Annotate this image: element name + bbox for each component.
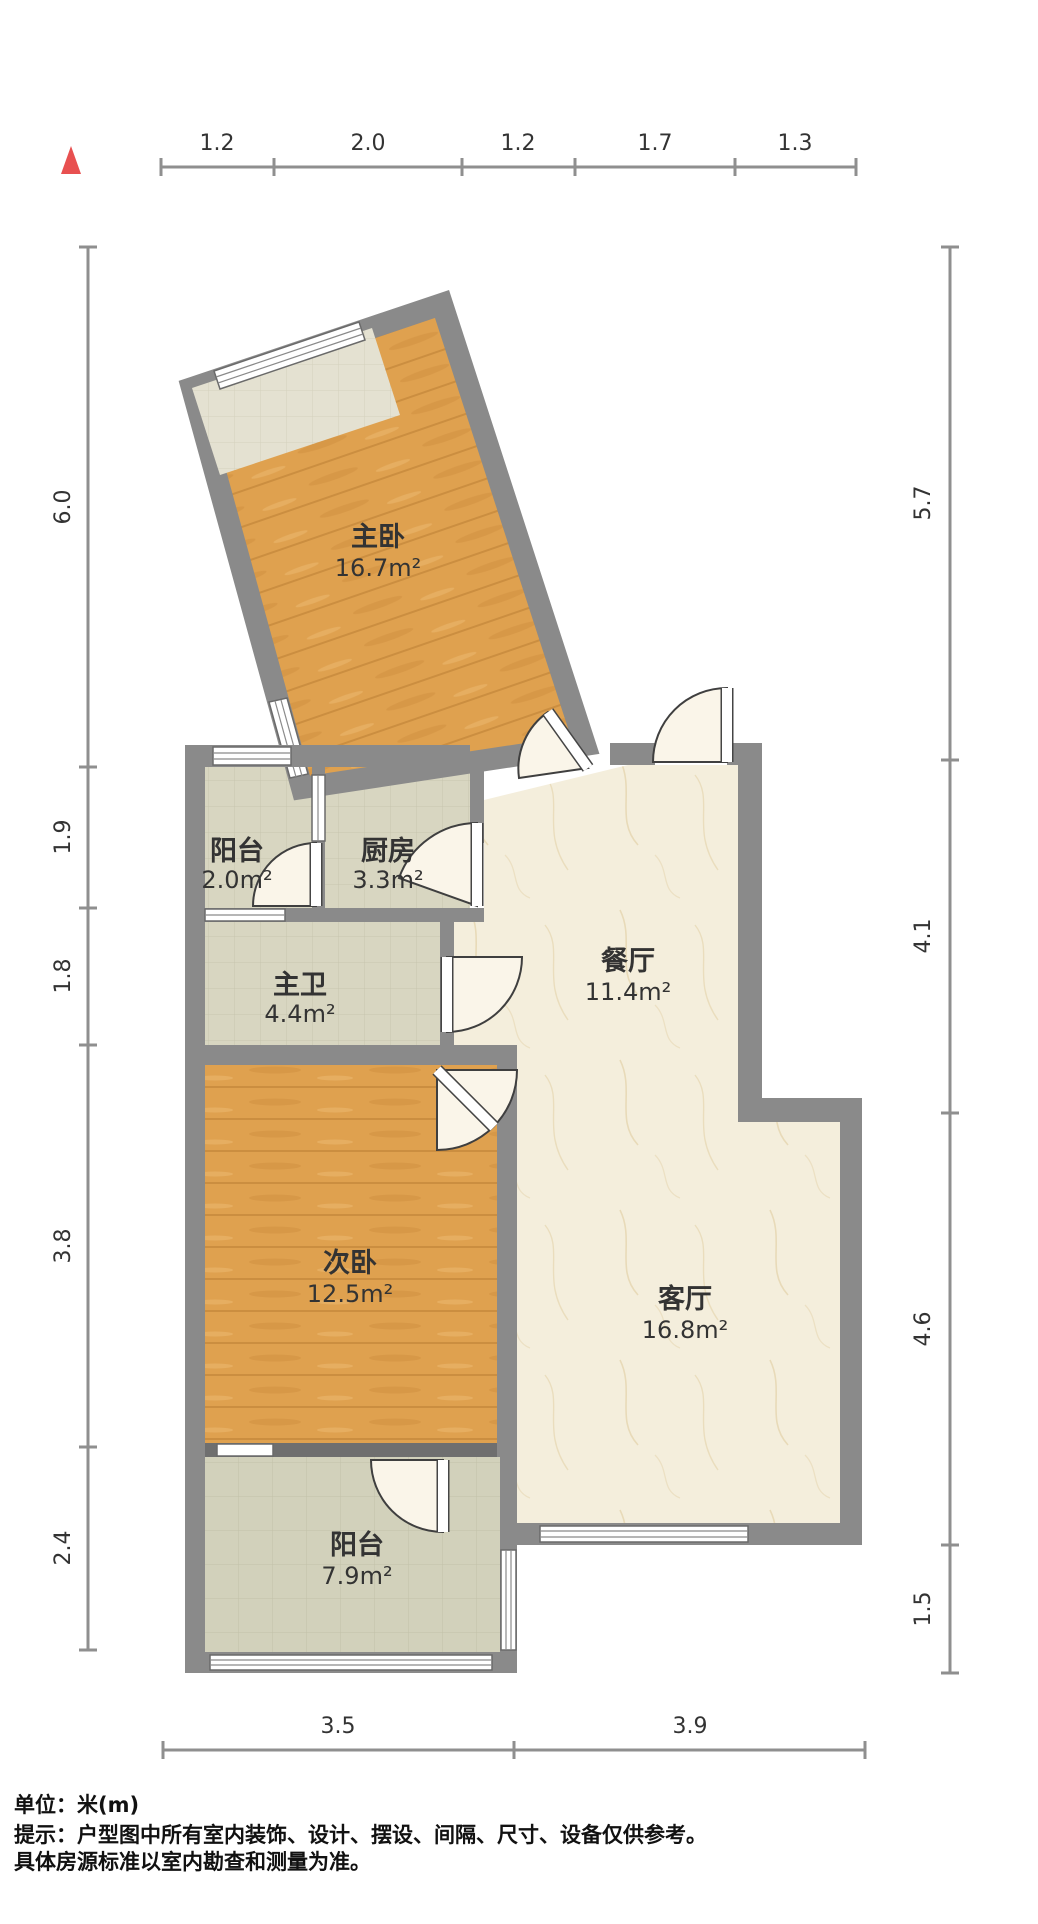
svg-text:次卧: 次卧 xyxy=(323,1248,377,1279)
bedroom2-bottom-window xyxy=(217,1444,273,1456)
dim-right: 5.7 4.1 4.6 1.5 xyxy=(911,247,959,1673)
svg-text:1.8: 1.8 xyxy=(51,959,76,994)
service-top-window xyxy=(213,747,291,765)
svg-text:阳台: 阳台 xyxy=(330,1529,384,1561)
dim-left: 6.0 1.9 1.8 3.8 2.4 xyxy=(51,247,97,1650)
svg-text:厨房: 厨房 xyxy=(361,836,415,867)
wall-bedroom2-top xyxy=(185,1045,517,1065)
svg-text:4.4m²: 4.4m² xyxy=(264,1000,335,1028)
svg-text:1.5: 1.5 xyxy=(911,1592,936,1627)
bath-top-window xyxy=(205,909,285,921)
svg-text:4.1: 4.1 xyxy=(911,919,936,954)
svg-text:阳台: 阳台 xyxy=(210,835,264,867)
footer-tip-2: 具体房源标准以室内勘查和测量为准。 xyxy=(14,1850,371,1874)
footer-notes: 单位：米(m) 提示：户型图中所有室内装饰、设计、摆设、间隔、尺寸、设备仅供参考… xyxy=(14,1793,707,1874)
svg-text:主卧: 主卧 xyxy=(351,522,405,553)
svg-text:主卫: 主卫 xyxy=(273,970,327,1001)
label-south-balcony: 阳台 7.9m² xyxy=(321,1529,392,1590)
svg-text:16.8m²: 16.8m² xyxy=(642,1316,728,1344)
footer-unit: 单位：米(m) xyxy=(14,1793,139,1817)
footer-tip-1: 提示：户型图中所有室内装饰、设计、摆设、间隔、尺寸、设备仅供参考。 xyxy=(14,1823,707,1847)
south-balcony-bottom-window xyxy=(210,1655,492,1670)
divider-glass xyxy=(312,775,325,841)
svg-text:1.7: 1.7 xyxy=(638,131,673,156)
wall-bedroom2-right xyxy=(497,1065,517,1457)
dim-bottom: 3.5 3.9 xyxy=(163,1714,865,1759)
wall-step xyxy=(738,1098,862,1122)
entry-door xyxy=(653,688,727,762)
south-balcony-right-window xyxy=(501,1550,516,1650)
svg-text:1.3: 1.3 xyxy=(778,131,813,156)
svg-text:1.2: 1.2 xyxy=(501,131,536,156)
svg-text:6.0: 6.0 xyxy=(51,490,76,525)
svg-text:1.2: 1.2 xyxy=(200,131,235,156)
svg-text:2.4: 2.4 xyxy=(51,1531,76,1566)
wall-entry-left xyxy=(610,743,655,765)
label-kitchen: 厨房 3.3m² xyxy=(352,836,423,894)
svg-text:3.8: 3.8 xyxy=(51,1229,76,1264)
svg-text:5.7: 5.7 xyxy=(911,486,936,521)
svg-text:3.3m²: 3.3m² xyxy=(352,866,423,894)
svg-text:12.5m²: 12.5m² xyxy=(307,1280,393,1308)
wall-dining-right xyxy=(738,765,762,1098)
dim-top: 1.2 2.0 1.2 1.7 1.3 xyxy=(161,131,856,176)
wall-living-right xyxy=(840,1098,862,1545)
svg-text:2.0m²: 2.0m² xyxy=(201,866,272,894)
living-bottom-window xyxy=(540,1526,748,1542)
north-triangle-icon xyxy=(61,146,81,174)
svg-text:1.9: 1.9 xyxy=(51,820,76,855)
svg-text:餐厅: 餐厅 xyxy=(601,946,655,977)
svg-text:3.5: 3.5 xyxy=(321,1714,356,1739)
svg-text:4.6: 4.6 xyxy=(911,1312,936,1347)
floor-plan-canvas: 主卧 16.7m² 阳台 2.0m² 厨房 3.3m² 主卫 4.4m² 次卧 … xyxy=(0,0,1038,1920)
label-master-bath: 主卫 4.4m² xyxy=(264,970,335,1028)
svg-text:客厅: 客厅 xyxy=(658,1283,712,1315)
svg-text:2.0: 2.0 xyxy=(351,131,386,156)
svg-text:3.9: 3.9 xyxy=(673,1714,708,1739)
svg-text:16.7m²: 16.7m² xyxy=(335,554,421,582)
svg-text:11.4m²: 11.4m² xyxy=(585,978,671,1006)
svg-text:7.9m²: 7.9m² xyxy=(321,1562,392,1590)
label-service-balcony: 阳台 2.0m² xyxy=(201,835,272,894)
floor-plan-page: 主卧 16.7m² 阳台 2.0m² 厨房 3.3m² 主卫 4.4m² 次卧 … xyxy=(0,0,1038,1920)
